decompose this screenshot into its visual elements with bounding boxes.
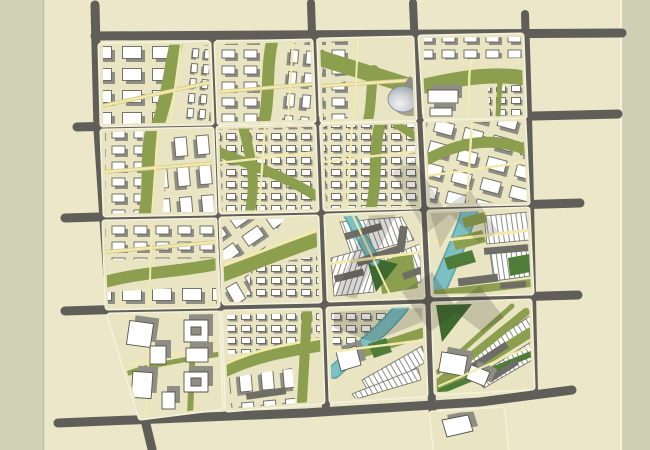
city-block-r1c1 (101, 44, 212, 124)
city-block-r3c2 (222, 218, 319, 302)
green-corridor (264, 42, 272, 122)
green-corridor (368, 70, 374, 120)
master-plan-map (0, 0, 650, 450)
city-block-r1c2 (217, 42, 313, 122)
city-block-r2c4 (426, 121, 527, 204)
city-block-r1c3 (320, 39, 426, 120)
building (428, 85, 462, 103)
building-field (219, 43, 262, 122)
city-block-r4c2 (225, 311, 322, 409)
city-block-south-edge (432, 410, 506, 450)
city-block-r3c1 (105, 221, 217, 307)
city-block-r2c2 (219, 127, 316, 211)
building-field (488, 84, 524, 116)
green-corridor (498, 80, 500, 116)
green-corridor (145, 130, 152, 214)
building-field (282, 42, 313, 120)
right-margin-panel (622, 0, 650, 450)
city-block-r4c3 (329, 307, 426, 400)
building-field (105, 221, 216, 260)
left-margin-panel (0, 0, 43, 450)
road-horizontal-1 (95, 33, 622, 36)
city-block-r1c4 (416, 36, 524, 117)
green-corridor (371, 124, 380, 208)
building-field (163, 130, 214, 212)
building-field (424, 37, 522, 60)
building-field (426, 121, 527, 204)
master-plan-canvas (0, 0, 650, 450)
city-block-r2c1 (103, 130, 215, 214)
green-corridor (302, 313, 307, 401)
